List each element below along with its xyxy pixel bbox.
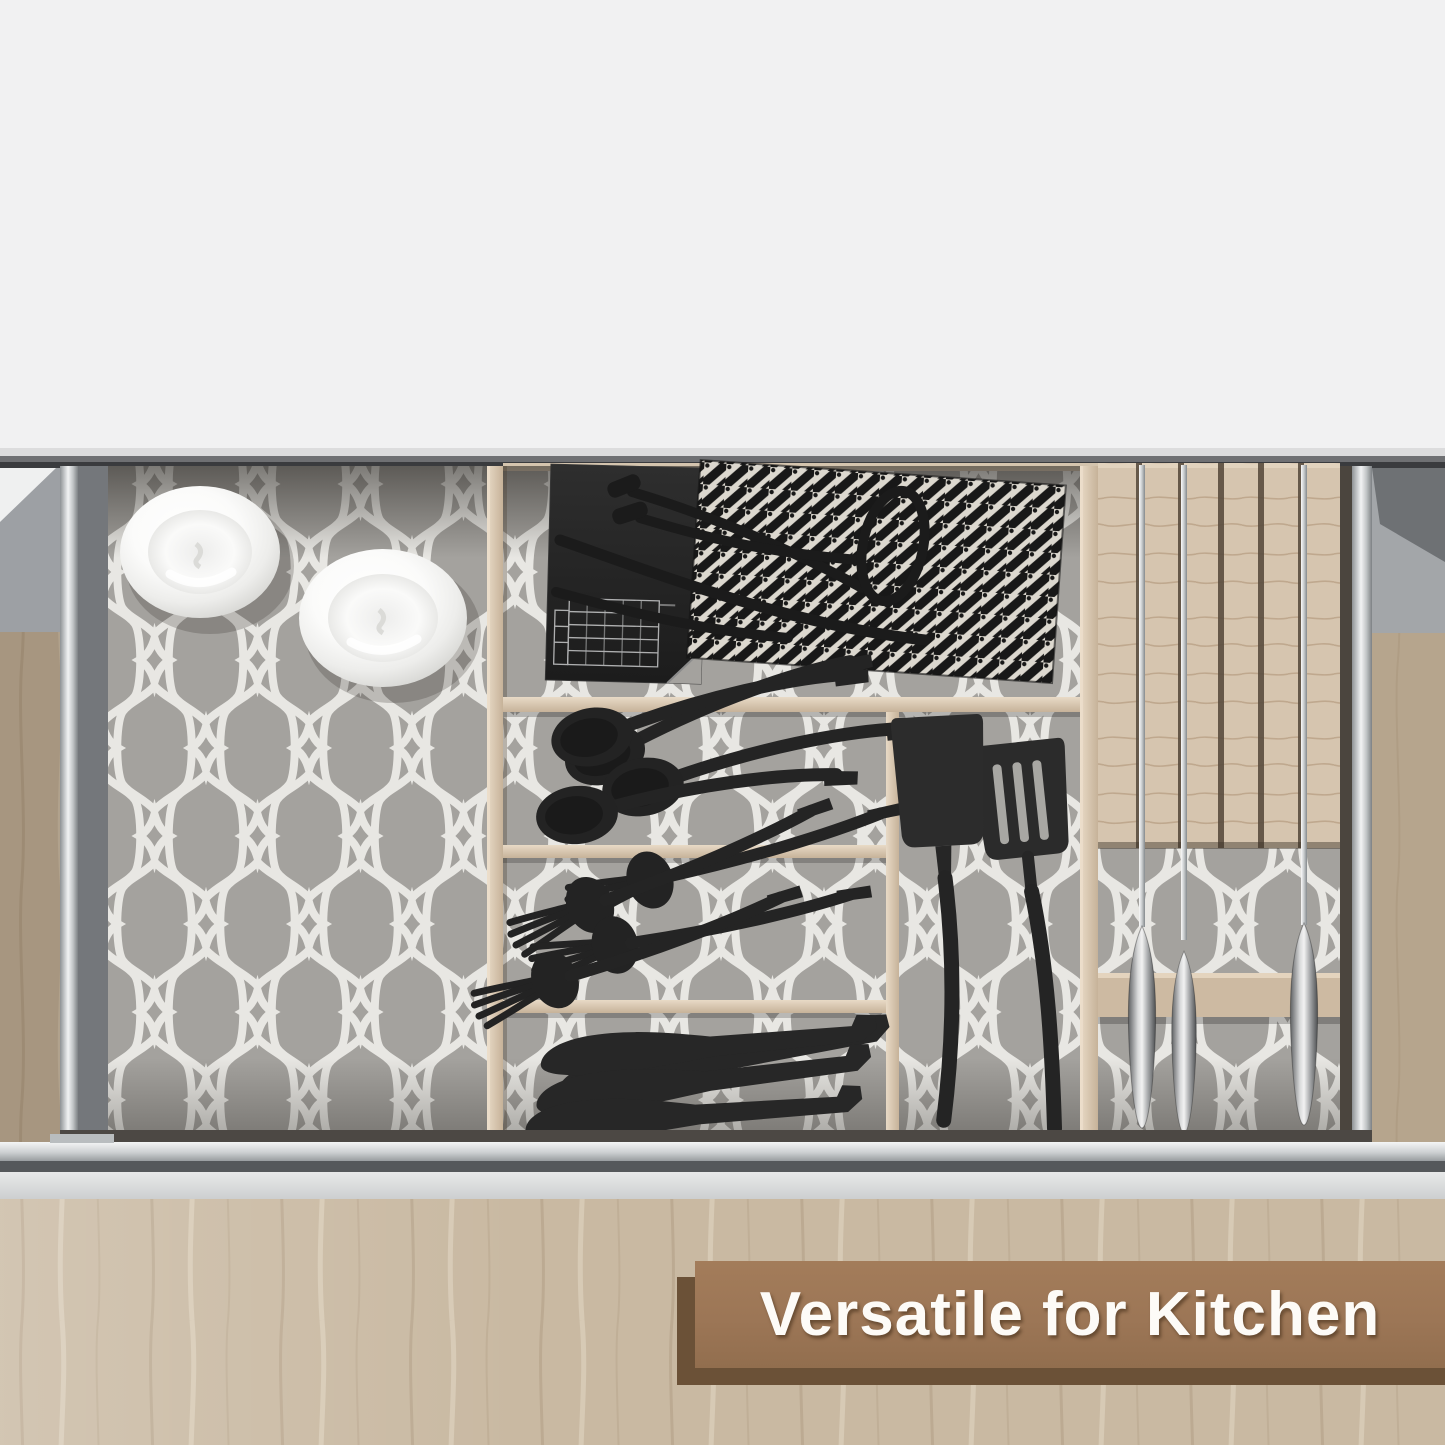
- drawer-inner-wall-left: [78, 466, 108, 1133]
- countertop-edge: [0, 448, 1445, 456]
- houndstooth-cloth: [687, 460, 1066, 683]
- drawer-front: [0, 1130, 1445, 1199]
- left-cabinet-panel: [0, 468, 62, 1172]
- right-cabinet-panel: [1372, 468, 1445, 1172]
- drawer-scene: [0, 0, 1445, 1445]
- drawer-inner-wall-right: [1340, 466, 1354, 1133]
- cabinet-face-wood: [0, 1199, 1445, 1445]
- drawer-rail-left: [60, 466, 78, 1154]
- countertop: [0, 0, 1445, 468]
- product-photo-kitchen-drawer: Versatile for Kitchen: [0, 0, 1445, 1445]
- drawer-front-silver-strip: [0, 1142, 1445, 1161]
- black-box: [545, 464, 707, 684]
- drawer-rail-right: [1352, 466, 1372, 1154]
